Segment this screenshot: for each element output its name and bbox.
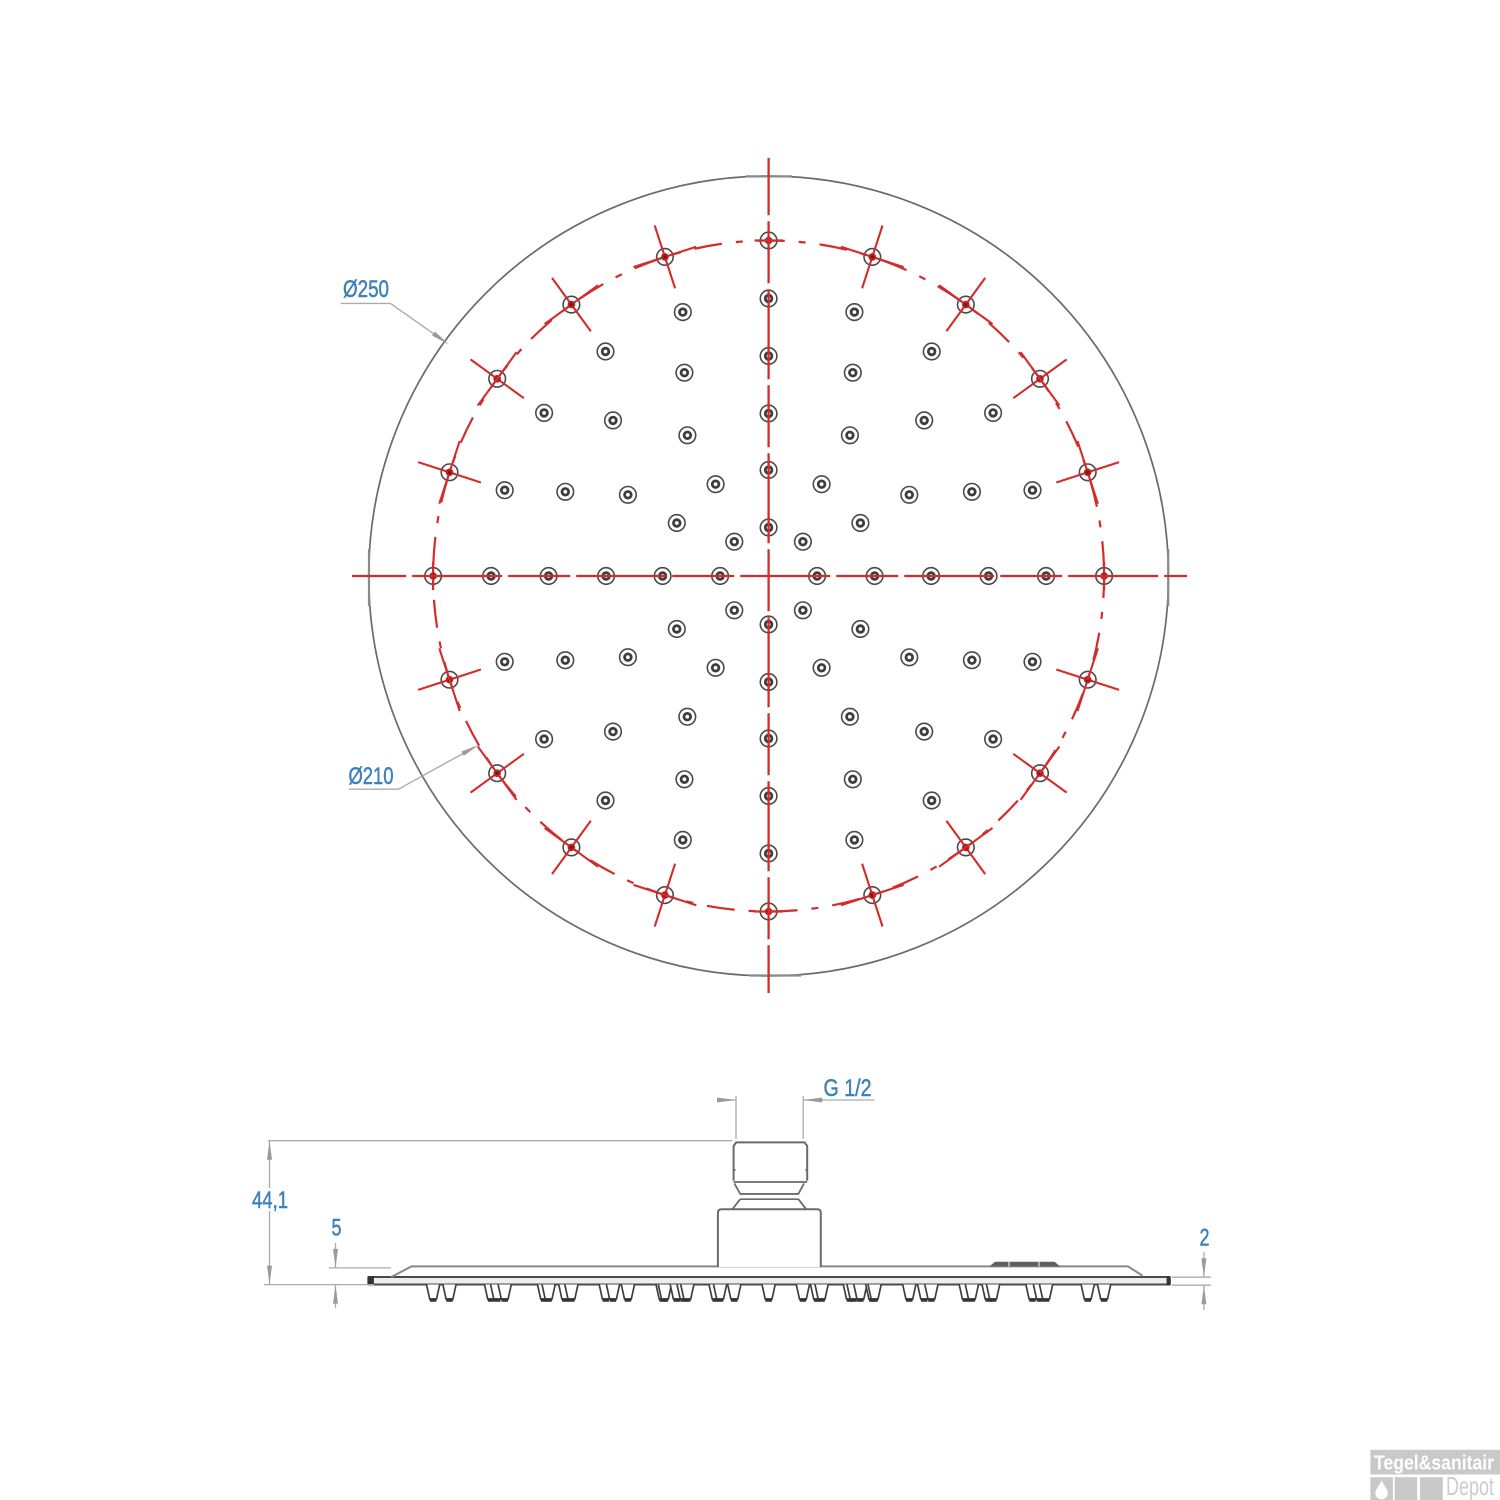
svg-text:Ø250: Ø250 (343, 276, 389, 303)
svg-text:44,1: 44,1 (252, 1187, 288, 1214)
svg-text:G 1/2: G 1/2 (824, 1075, 872, 1102)
svg-text:2: 2 (1200, 1225, 1210, 1252)
svg-text:5: 5 (332, 1215, 342, 1242)
svg-text:Depot: Depot (1446, 1471, 1495, 1500)
svg-text:Ø210: Ø210 (349, 763, 394, 790)
